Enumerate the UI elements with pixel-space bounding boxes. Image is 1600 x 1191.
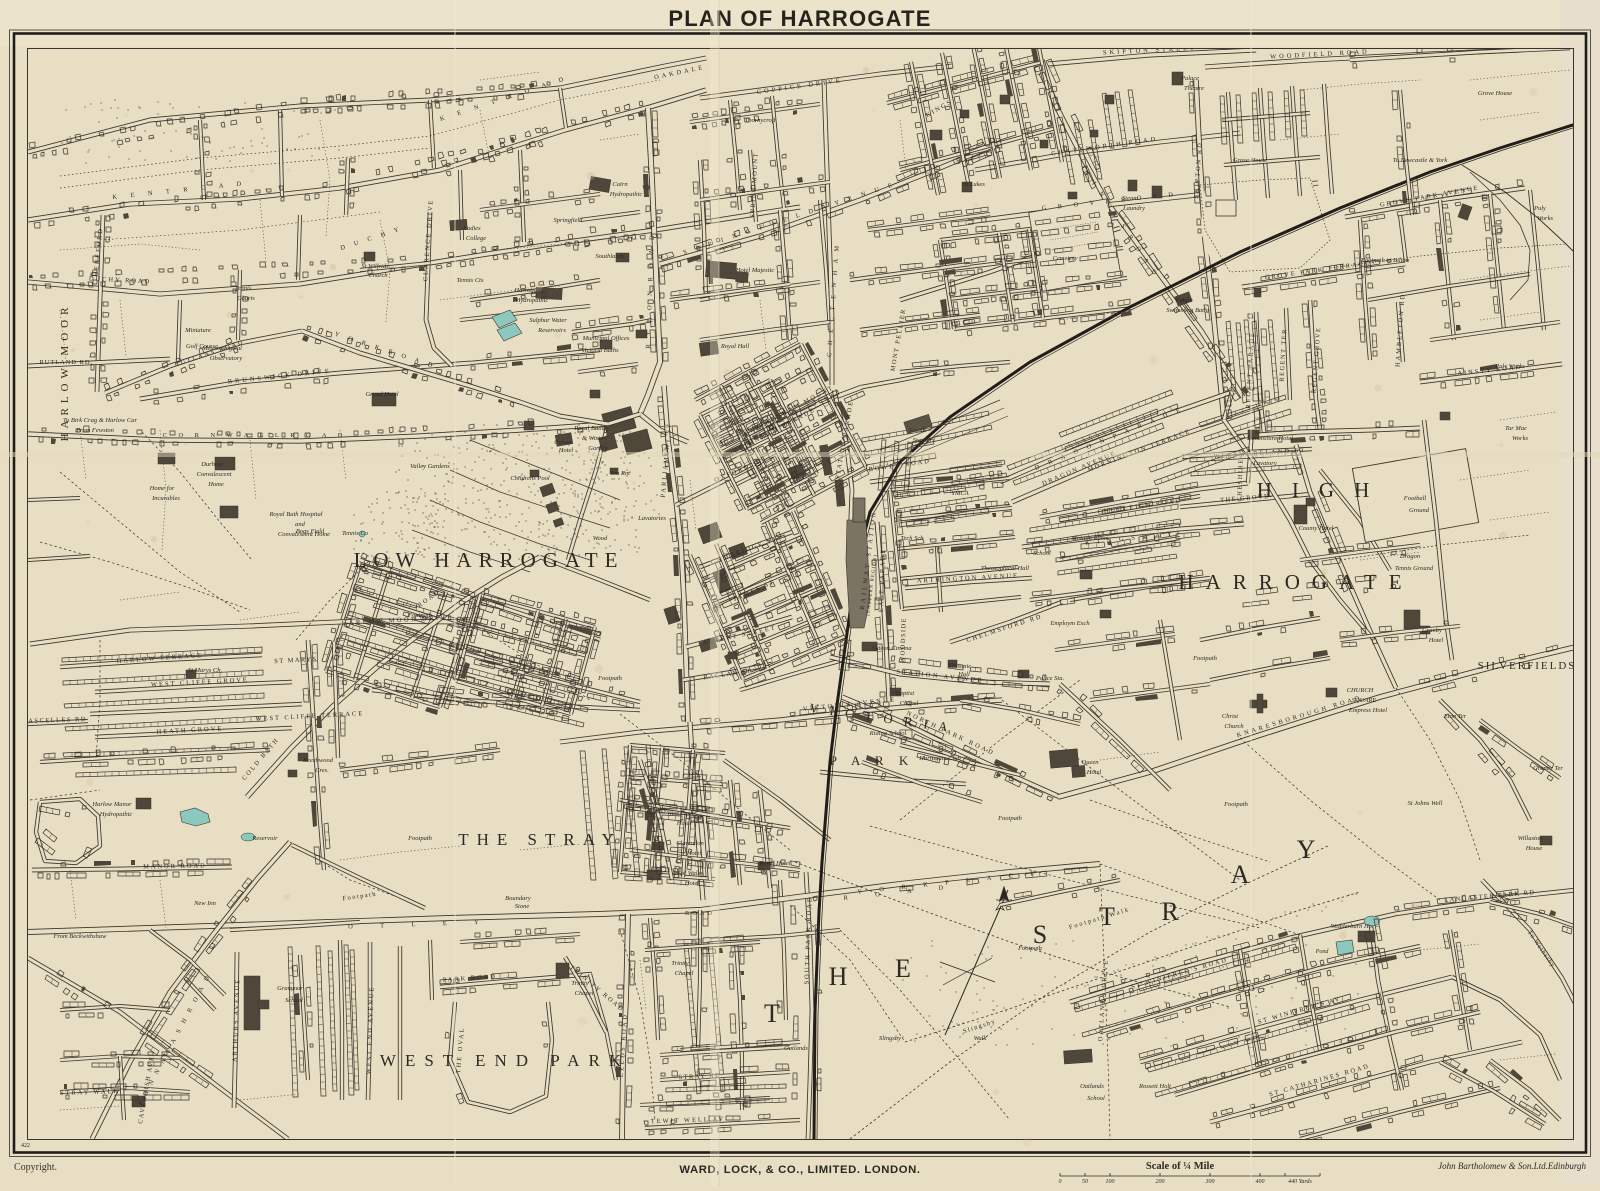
svg-text:Footpath: Footpath bbox=[1192, 655, 1217, 662]
svg-text:Cairn: Cairn bbox=[612, 181, 627, 188]
svg-text:Church: Church bbox=[368, 272, 387, 279]
svg-text:Cres.: Cres. bbox=[315, 767, 329, 774]
svg-text:Slingsby: Slingsby bbox=[879, 1035, 901, 1042]
svg-text:Odeon Cinema: Odeon Cinema bbox=[872, 645, 911, 652]
svg-text:Steam: Steam bbox=[1122, 195, 1138, 202]
svg-text:Footpath to Bilton: Footpath to Bilton bbox=[1360, 257, 1409, 264]
svg-text:WEST END PARK: WEST END PARK bbox=[380, 1051, 630, 1070]
svg-text:E: E bbox=[895, 954, 911, 983]
svg-text:Footpath: Footpath bbox=[997, 815, 1022, 822]
svg-text:West Park: West Park bbox=[667, 810, 693, 817]
svg-text:Chapel: Chapel bbox=[900, 700, 919, 707]
svg-text:Bogs Field: Bogs Field bbox=[296, 528, 325, 535]
svg-text:422: 422 bbox=[21, 1143, 30, 1149]
svg-text:Empress Hotel: Empress Hotel bbox=[1348, 707, 1387, 714]
svg-text:Walk: Walk bbox=[974, 1035, 987, 1042]
svg-text:Ladies: Ladies bbox=[462, 225, 481, 232]
svg-text:Christ: Christ bbox=[1222, 713, 1238, 720]
svg-text:Scale of ¼ Mile: Scale of ¼ Mile bbox=[1146, 1161, 1215, 1172]
svg-text:Puly Works: Puly Works bbox=[1494, 363, 1525, 370]
svg-text:Chapel: Chapel bbox=[575, 990, 594, 997]
svg-text:Hotel: Hotel bbox=[686, 850, 702, 857]
svg-text:Police Sta.: Police Sta. bbox=[1035, 675, 1065, 682]
svg-text:MANOR ROAD: MANOR ROAD bbox=[143, 862, 207, 870]
svg-text:PLAN OF HARROGATE: PLAN OF HARROGATE bbox=[668, 6, 931, 31]
svg-text:0: 0 bbox=[1059, 1179, 1062, 1185]
svg-text:From Fewston: From Fewston bbox=[75, 427, 114, 434]
svg-text:Southlands: Southlands bbox=[596, 253, 625, 260]
svg-text:Grand Hotel: Grand Hotel bbox=[365, 391, 398, 398]
svg-text:To Newcastle & York: To Newcastle & York bbox=[1393, 157, 1448, 164]
svg-text:Lavatories: Lavatories bbox=[637, 515, 666, 522]
svg-text:Convalescent: Convalescent bbox=[196, 471, 231, 478]
svg-text:Home: Home bbox=[207, 481, 224, 488]
svg-text:Willaston: Willaston bbox=[1518, 835, 1543, 842]
svg-text:Tennis Co: Tennis Co bbox=[342, 530, 369, 537]
svg-text:Ground: Ground bbox=[1409, 507, 1430, 514]
svg-text:Rossett Holt: Rossett Holt bbox=[1138, 1083, 1171, 1090]
svg-text:Springfield: Springfield bbox=[554, 217, 584, 224]
svg-text:House: House bbox=[1525, 845, 1543, 852]
svg-text:Goods: Goods bbox=[910, 427, 927, 434]
svg-text:Harrogate Club: Harrogate Club bbox=[918, 755, 961, 762]
svg-text:School: School bbox=[1033, 550, 1051, 557]
svg-text:Oatlands: Oatlands bbox=[1080, 1083, 1104, 1090]
svg-text:College: College bbox=[466, 235, 486, 242]
svg-text:& Winter: & Winter bbox=[582, 435, 606, 442]
svg-text:Miniature: Miniature bbox=[184, 327, 211, 334]
svg-text:Works: Works bbox=[1537, 215, 1553, 222]
svg-text:John Bartholomew & Son.Ltd.Edi: John Bartholomew & Son.Ltd.Edinburgh bbox=[1438, 1161, 1586, 1171]
svg-text:100: 100 bbox=[1106, 1179, 1115, 1185]
svg-text:Hydropathic: Hydropathic bbox=[99, 811, 133, 818]
svg-text:Dragon: Dragon bbox=[1399, 553, 1420, 560]
svg-text:Royal Bath Hospital: Royal Bath Hospital bbox=[268, 511, 322, 518]
svg-text:Riding School: Riding School bbox=[869, 730, 907, 737]
svg-text:50: 50 bbox=[1082, 1179, 1088, 1185]
svg-text:SQUARE: SQUARE bbox=[1352, 697, 1377, 704]
svg-text:300: 300 bbox=[1205, 1179, 1215, 1185]
svg-text:Reservoirs: Reservoirs bbox=[537, 327, 566, 334]
svg-text:Hall: Hall bbox=[957, 671, 970, 678]
svg-text:Eton Ter: Eton Ter bbox=[1443, 713, 1467, 720]
svg-text:Garden: Garden bbox=[588, 445, 608, 452]
svg-text:T: T bbox=[764, 999, 780, 1028]
svg-text:Courts: Courts bbox=[237, 295, 255, 302]
svg-text:Tennis Cts: Tennis Cts bbox=[456, 277, 484, 284]
svg-text:C O R N W A L L R O A D: C O R N W A L L R O A D bbox=[163, 432, 348, 439]
svg-text:Employm Exch: Employm Exch bbox=[1049, 620, 1089, 627]
svg-text:Hotel: Hotel bbox=[684, 880, 700, 887]
svg-text:Hotel: Hotel bbox=[1428, 637, 1444, 644]
svg-text:St Johns Well: St Johns Well bbox=[1408, 800, 1443, 807]
svg-text:Grove House: Grove House bbox=[1478, 90, 1512, 97]
svg-text:R: R bbox=[1161, 897, 1179, 926]
svg-text:From Beckwithshaw: From Beckwithshaw bbox=[52, 933, 107, 940]
svg-text:Theosophical Hall: Theosophical Hall bbox=[981, 565, 1029, 572]
svg-text:Home for: Home for bbox=[149, 485, 175, 492]
svg-text:Lavatory: Lavatory bbox=[1252, 460, 1277, 467]
svg-text:Footpath: Footpath bbox=[1223, 801, 1248, 808]
svg-text:Puly: Puly bbox=[1533, 205, 1546, 212]
svg-text:Observatory: Observatory bbox=[210, 355, 243, 362]
svg-text:Beechwood: Beechwood bbox=[303, 757, 334, 764]
svg-text:Valley Gardens: Valley Gardens bbox=[410, 463, 450, 470]
svg-text:Boundary: Boundary bbox=[505, 895, 531, 902]
svg-text:Thornycroft: Thornycroft bbox=[745, 117, 776, 124]
svg-text:Hotel: Hotel bbox=[676, 820, 692, 827]
svg-text:SILVERFIELDS: SILVERFIELDS bbox=[1478, 660, 1577, 672]
svg-text:Laundry: Laundry bbox=[1122, 205, 1145, 212]
svg-text:Sulphur Water: Sulphur Water bbox=[529, 317, 567, 324]
svg-text:Works: Works bbox=[1512, 435, 1528, 442]
svg-text:YMCA: YMCA bbox=[951, 490, 968, 497]
svg-text:Stone: Stone bbox=[515, 903, 530, 910]
svg-text:St Marys Ch.: St Marys Ch. bbox=[188, 667, 223, 674]
svg-text:Masonic: Masonic bbox=[948, 663, 972, 670]
svg-text:Swimming Baths: Swimming Baths bbox=[1166, 307, 1210, 314]
svg-text:Royal Baths: Royal Baths bbox=[573, 425, 606, 432]
svg-text:440 Yards: 440 Yards bbox=[1288, 1178, 1312, 1185]
svg-text:Footpath: Footpath bbox=[407, 612, 432, 619]
svg-text:Granby Ter: Granby Ter bbox=[1533, 765, 1563, 772]
svg-text:RUTLAND RD: RUTLAND RD bbox=[39, 359, 90, 366]
svg-text:and: and bbox=[295, 521, 306, 528]
svg-text:St Wilfrids: St Wilfrids bbox=[361, 263, 389, 270]
svg-text:Incurables: Incurables bbox=[151, 495, 180, 502]
svg-text:Queen: Queen bbox=[1082, 759, 1099, 766]
svg-text:Cemetery: Cemetery bbox=[1053, 255, 1078, 262]
svg-text:Footpath: Footpath bbox=[1017, 945, 1042, 952]
svg-text:Public: Public bbox=[1175, 297, 1193, 304]
svg-text:Durham: Durham bbox=[200, 461, 223, 468]
svg-text:Royal Hall: Royal Hall bbox=[720, 343, 750, 350]
svg-text:Tech Sch: Tech Sch bbox=[900, 535, 923, 542]
svg-text:Pond: Pond bbox=[1315, 949, 1330, 955]
svg-text:Meteorological: Meteorological bbox=[201, 345, 242, 352]
svg-text:Station: Station bbox=[913, 437, 931, 444]
svg-text:Football: Football bbox=[1403, 495, 1427, 502]
svg-text:County Hotel: County Hotel bbox=[1299, 525, 1334, 532]
svg-text:Copyright.: Copyright. bbox=[14, 1162, 57, 1173]
svg-text:Victoria Baths: Victoria Baths bbox=[581, 347, 619, 354]
svg-text:Reservoir: Reservoir bbox=[251, 835, 278, 842]
svg-text:Oatlands: Oatlands bbox=[784, 1045, 808, 1052]
svg-text:Trinity: Trinity bbox=[671, 960, 688, 967]
svg-text:Clarendon: Clarendon bbox=[676, 840, 704, 847]
svg-text:Chapel: Chapel bbox=[675, 970, 694, 977]
svg-text:School: School bbox=[1087, 1095, 1105, 1102]
svg-text:Palace: Palace bbox=[1180, 75, 1199, 82]
svg-text:200: 200 bbox=[1156, 1179, 1165, 1185]
svg-text:Tar Mac: Tar Mac bbox=[1505, 425, 1527, 432]
svg-text:HARROGATE: HARROGATE bbox=[1178, 570, 1413, 594]
svg-text:Grammar: Grammar bbox=[277, 985, 303, 992]
svg-text:Trinity: Trinity bbox=[571, 980, 588, 987]
svg-text:LOW HARROGATE: LOW HARROGATE bbox=[354, 548, 625, 572]
svg-text:Harlow Manor: Harlow Manor bbox=[91, 801, 132, 808]
svg-text:HIGH: HIGH bbox=[1257, 478, 1390, 502]
svg-text:Mission Room: Mission Room bbox=[1070, 535, 1109, 542]
svg-text:Hydropathic: Hydropathic bbox=[515, 297, 549, 304]
svg-text:New Inn: New Inn bbox=[193, 900, 216, 907]
svg-text:To Birk Crag & Harlow Car: To Birk Crag & Harlow Car bbox=[63, 417, 137, 424]
svg-text:Theatre: Theatre bbox=[1184, 85, 1204, 92]
svg-text:Tennis: Tennis bbox=[235, 285, 252, 292]
svg-text:H: H bbox=[829, 962, 848, 991]
svg-text:Hotel Majestic: Hotel Majestic bbox=[735, 267, 775, 274]
svg-text:Hydropathic: Hydropathic bbox=[609, 191, 643, 198]
svg-text:Municipal Offices: Municipal Offices bbox=[582, 335, 630, 342]
svg-text:Hotel: Hotel bbox=[1086, 769, 1102, 776]
svg-text:Tennis Ground: Tennis Ground bbox=[1395, 565, 1434, 572]
svg-text:400: 400 bbox=[1256, 1178, 1265, 1185]
svg-text:A: A bbox=[1231, 860, 1250, 889]
svg-text:Pr of Wales: Pr of Wales bbox=[672, 870, 704, 877]
svg-text:CHURCH: CHURCH bbox=[1347, 687, 1374, 694]
svg-text:Childrens Pool: Childrens Pool bbox=[510, 475, 549, 482]
svg-text:Wedderburn Ho.: Wedderburn Ho. bbox=[1330, 923, 1373, 930]
svg-text:St Lukes: St Lukes bbox=[963, 181, 985, 188]
svg-text:School: School bbox=[285, 997, 303, 1004]
svg-text:Devonshire Hotel: Devonshire Hotel bbox=[1246, 435, 1293, 442]
svg-text:Granby: Granby bbox=[1422, 627, 1442, 634]
svg-text:Tea Rm: Tea Rm bbox=[610, 470, 630, 477]
svg-text:Crown: Crown bbox=[554, 439, 571, 446]
svg-text:Y: Y bbox=[1297, 835, 1316, 864]
svg-text:P A R K: P A R K bbox=[830, 753, 915, 768]
svg-text:Royal Hotel: Royal Hotel bbox=[758, 860, 790, 867]
svg-text:Footpath: Footpath bbox=[407, 835, 432, 842]
svg-text:Baptist: Baptist bbox=[896, 690, 915, 697]
svg-text:Footpath: Footpath bbox=[597, 675, 622, 682]
svg-text:Church: Church bbox=[1224, 723, 1243, 730]
svg-text:Wood: Wood bbox=[593, 535, 608, 542]
svg-text:THE STRAY: THE STRAY bbox=[458, 830, 621, 849]
